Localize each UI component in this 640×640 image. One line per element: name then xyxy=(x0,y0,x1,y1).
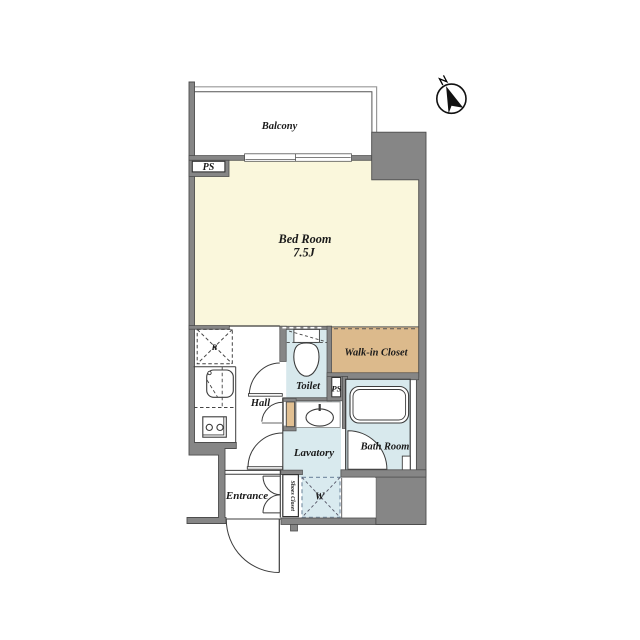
svg-text:7.5J: 7.5J xyxy=(293,246,315,260)
svg-text:R: R xyxy=(211,342,218,352)
svg-text:Lavatory: Lavatory xyxy=(293,447,334,459)
svg-text:PS: PS xyxy=(203,162,215,173)
svg-text:Bath Room: Bath Room xyxy=(360,441,410,452)
svg-text:Bed Room: Bed Room xyxy=(278,232,332,246)
svg-text:W: W xyxy=(315,492,325,503)
svg-text:Balcony: Balcony xyxy=(261,121,298,132)
svg-text:PS: PS xyxy=(331,384,341,394)
svg-text:Toilet: Toilet xyxy=(296,381,321,392)
svg-text:Walk-in Closet: Walk-in Closet xyxy=(344,348,408,359)
svg-text:Hall: Hall xyxy=(250,398,270,409)
svg-text:Entrance: Entrance xyxy=(225,490,268,502)
svg-text:Shoes Closet: Shoes Closet xyxy=(289,481,295,512)
